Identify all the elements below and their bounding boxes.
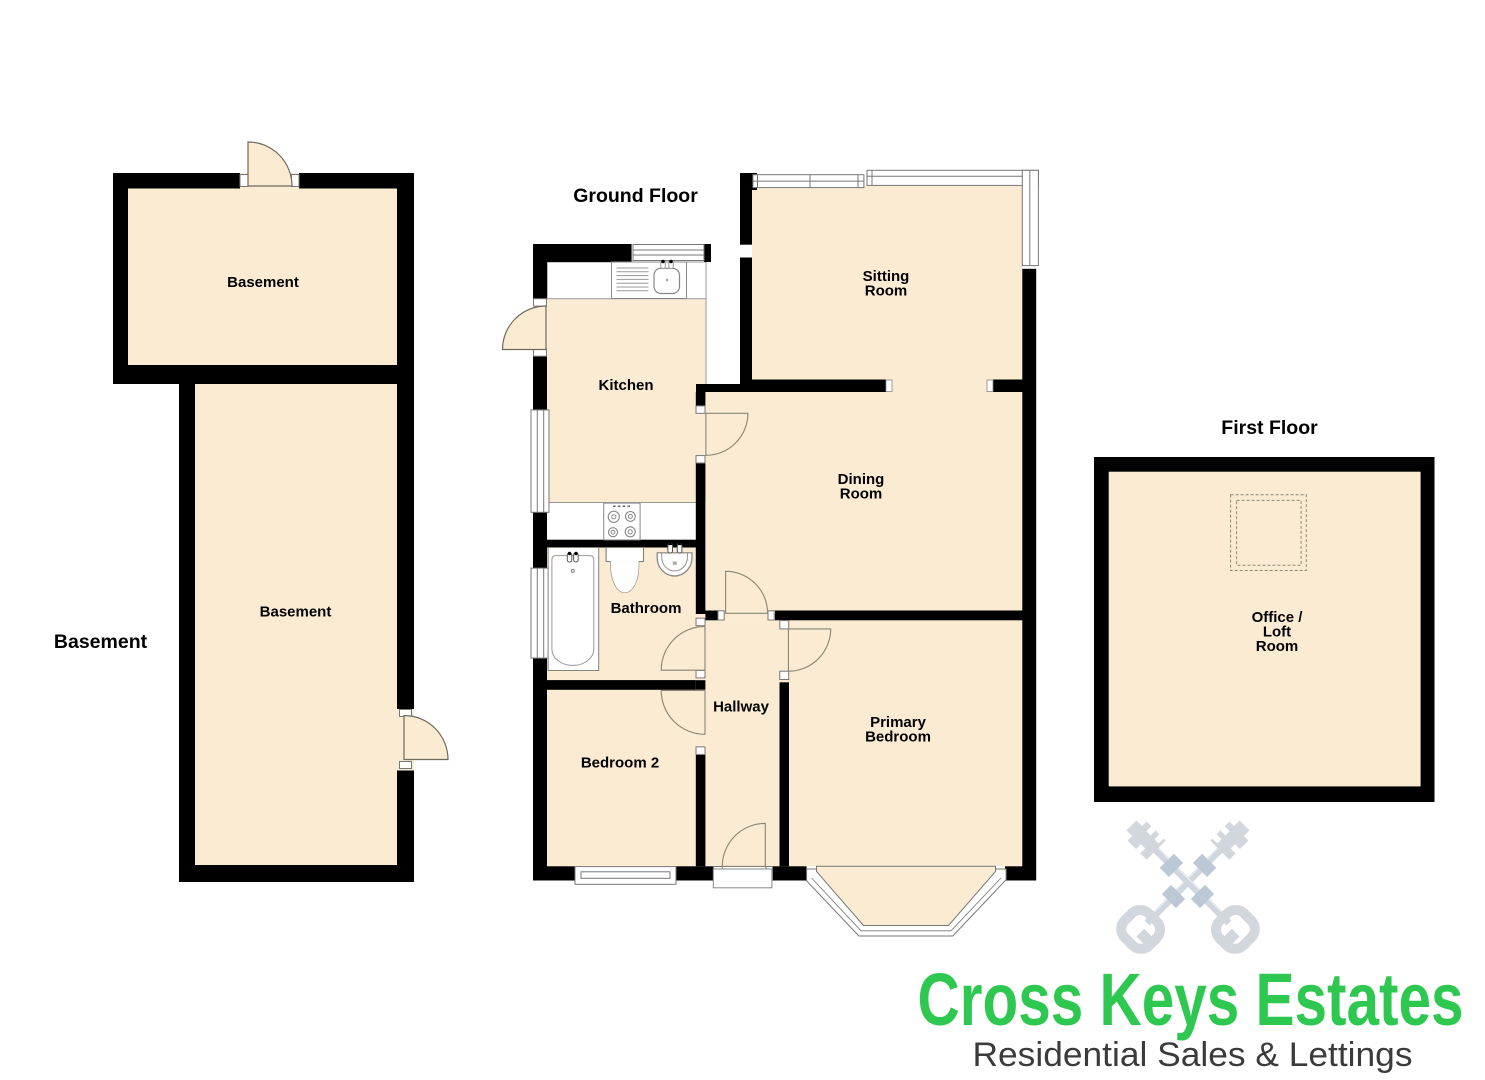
svg-text:Residential Sales & Lettings: Residential Sales & Lettings (973, 1036, 1413, 1074)
svg-text:Bedroom 2: Bedroom 2 (581, 755, 659, 772)
svg-text:Bedroom: Bedroom (865, 729, 931, 746)
svg-text:Cross Keys Estates: Cross Keys Estates (918, 958, 1464, 1041)
svg-text:Room: Room (1256, 638, 1299, 655)
svg-text:Kitchen: Kitchen (598, 377, 653, 394)
svg-text:Basement: Basement (227, 274, 299, 291)
svg-text:Basement: Basement (260, 604, 332, 621)
svg-text:Basement: Basement (54, 631, 148, 653)
svg-text:Ground Floor: Ground Floor (573, 185, 698, 207)
svg-text:Hallway: Hallway (713, 699, 770, 716)
svg-text:Room: Room (840, 486, 883, 503)
svg-text:Bathroom: Bathroom (611, 600, 682, 617)
svg-text:First Floor: First Floor (1221, 417, 1318, 439)
svg-text:Room: Room (865, 283, 908, 300)
